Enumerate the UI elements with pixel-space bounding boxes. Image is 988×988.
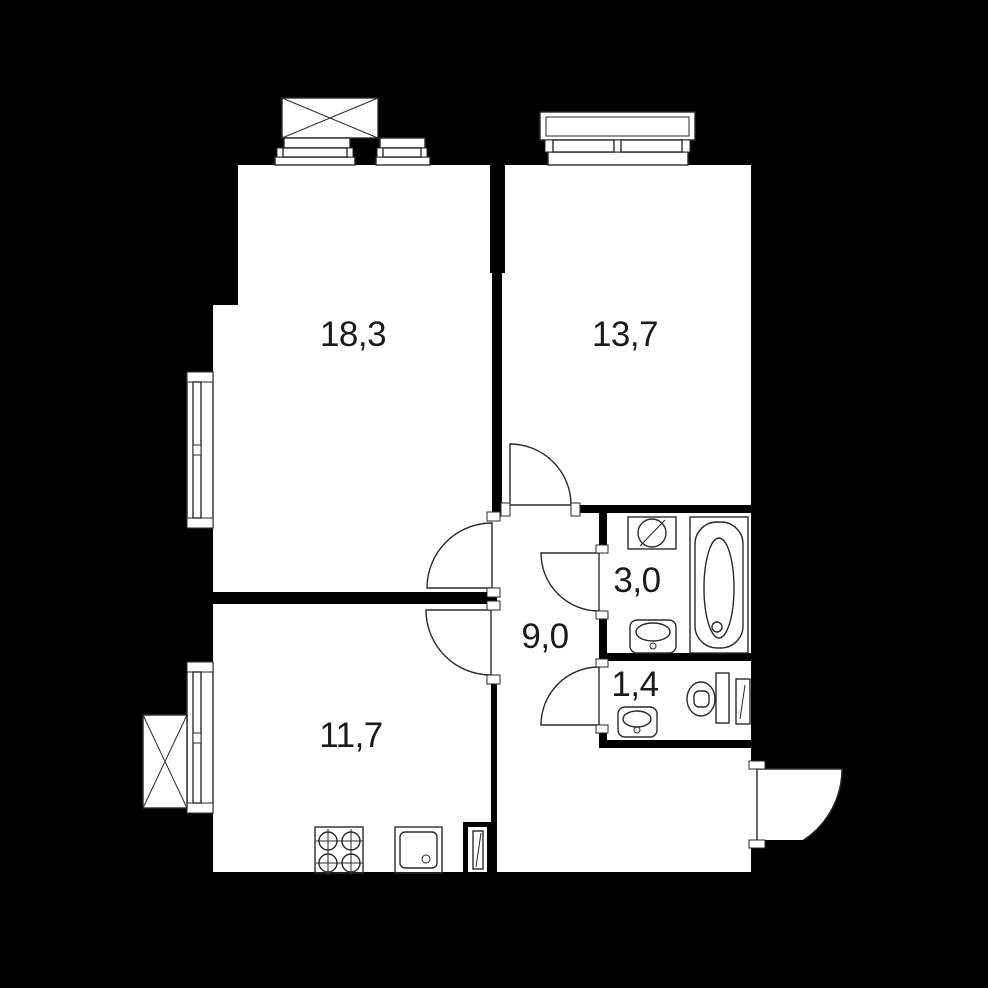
room-living (213, 165, 492, 592)
duct-shaft-kitchen-icon (468, 827, 487, 872)
window-kitchen-left-icon (187, 662, 213, 813)
wall-entrance-bottom (752, 840, 882, 885)
floor-plan-svg: 18,3 13,7 3,0 9,0 1,4 11,7 (0, 0, 988, 988)
floor-plan-canvas: 18,3 13,7 3,0 9,0 1,4 11,7 (0, 0, 988, 988)
label-living-area: 18,3 (320, 315, 386, 354)
window-bedroom-top-icon (540, 112, 695, 165)
window-living-top-large-icon (275, 138, 355, 165)
window-living-left-icon (187, 372, 213, 528)
label-bedroom-area: 13,7 (592, 315, 658, 354)
label-bathroom-area: 3,0 (613, 561, 660, 600)
window-living-top-small-icon (376, 138, 430, 165)
label-kitchen-area: 11,7 (319, 716, 383, 755)
balcony-box-kitchen-icon (143, 715, 187, 808)
balcony-box-living-icon (282, 98, 378, 138)
label-wc-area: 1,4 (611, 665, 658, 704)
background (0, 0, 988, 988)
label-hallway-area: 9,0 (521, 617, 568, 656)
wall-living-bedroom-thick (490, 165, 505, 273)
